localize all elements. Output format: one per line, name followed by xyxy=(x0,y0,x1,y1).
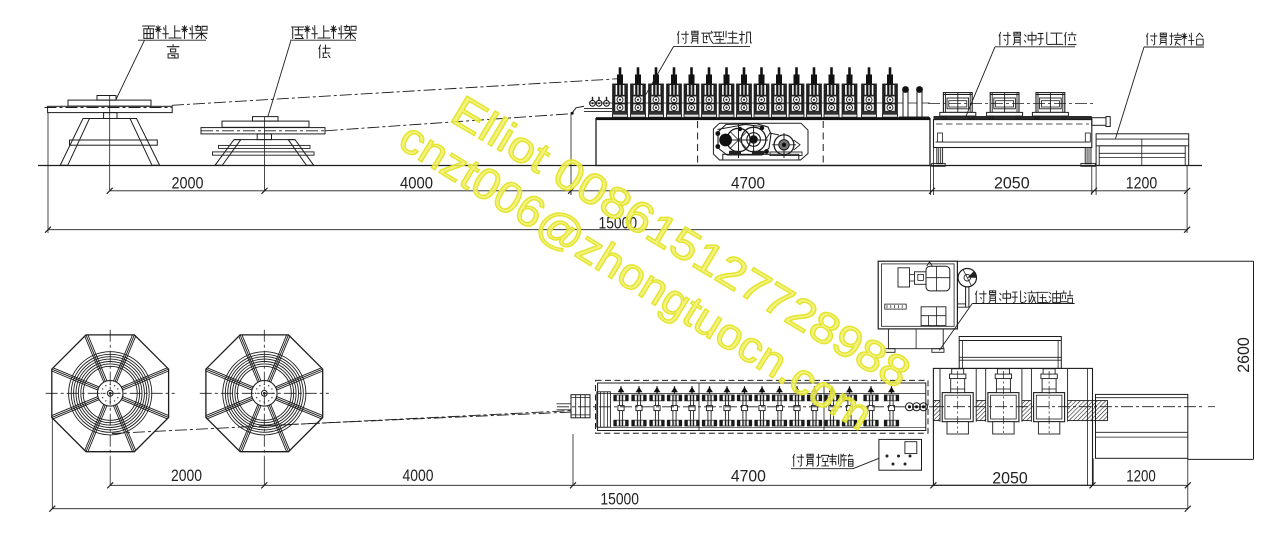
svg-text:2050: 2050 xyxy=(994,174,1030,192)
svg-text:4000: 4000 xyxy=(403,467,434,485)
svg-text:1200: 1200 xyxy=(1126,174,1157,192)
svg-text:1200: 1200 xyxy=(1126,468,1156,486)
svg-text:2050: 2050 xyxy=(992,470,1028,488)
svg-text:2000: 2000 xyxy=(172,174,204,192)
svg-text:2000: 2000 xyxy=(171,467,202,485)
svg-text:2600: 2600 xyxy=(1235,337,1253,373)
svg-text:4700: 4700 xyxy=(731,174,765,192)
svg-text:4700: 4700 xyxy=(731,468,766,486)
svg-text:15000: 15000 xyxy=(600,490,639,508)
